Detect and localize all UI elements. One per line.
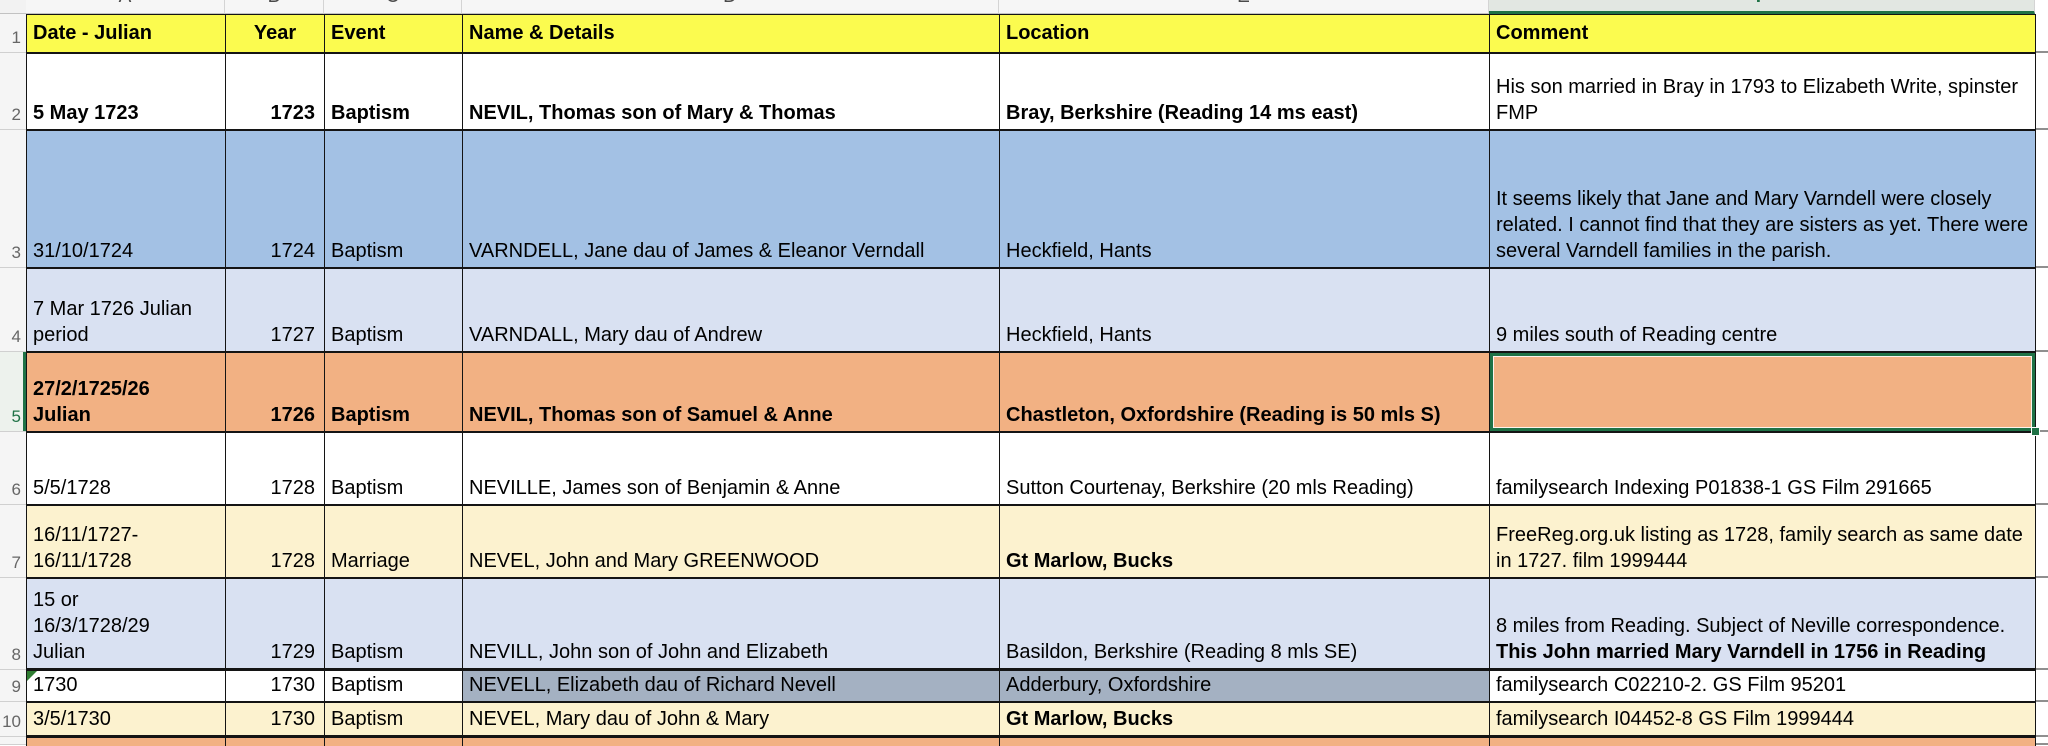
cell-text: Heckfield, Hants [1006,238,1152,264]
next-column-sliver [2036,14,2048,745]
empty-cell[interactable] [2036,53,2048,130]
column-header-d[interactable]: D [462,0,999,14]
cell-location[interactable]: Adderbury, Oxfordshire [1000,671,1490,701]
cell-date[interactable]: 16/11/1727- 16/11/1728 [27,506,226,577]
row-header-2[interactable]: 2 [0,53,26,130]
cell-location[interactable]: Heckfield, Hants [1000,269,1490,351]
cell-text: 3/5/1730 [33,706,111,732]
cell-text: 1726 [271,402,316,428]
cell-location[interactable]: Heckfield, Hants [1000,131,1490,267]
cell-text: 16/11/1727- 16/11/1728 [33,522,138,574]
cell-text: 1728 [271,475,316,501]
column-header-a[interactable]: A [26,0,225,14]
table-row: 3/5/1730 1730 Baptism NEVEL, Mary dau of… [27,703,2036,738]
cell-year[interactable]: 1730 [226,671,325,701]
sheet-grid: Date - Julian Year Event Name & Details … [26,14,2036,746]
cell-text: VARNDALL, Mary dau of Andrew [469,322,762,348]
cell-location[interactable]: Sutton Courtenay, Berkshire (20 mls Read… [1000,433,1490,504]
empty-cell[interactable] [2036,432,2048,505]
cell-text: Baptism [331,639,403,665]
cell-text: 5 May 1723 [33,100,139,126]
row-header-8[interactable]: 8 [0,578,26,670]
cell-text: Sutton Courtenay, Berkshire (20 mls Read… [1006,475,1414,501]
cell-location[interactable]: Basildon, Berkshire (Reading 8 mls SE) [1000,579,1490,668]
header-date-julian[interactable]: Date - Julian [27,15,226,52]
cell-year[interactable]: 1723 [226,54,325,129]
cell-text: 1730 [271,672,316,698]
empty-cell[interactable] [2036,578,2048,670]
cell-text: 1730 [271,706,316,732]
row-number: 6 [12,480,21,500]
table-row: 1730 1730 Baptism NEVELL, Elizabeth dau … [27,671,2036,703]
gutter-corner[interactable] [0,0,26,14]
cell-text: 15 or 16/3/1728/29 Julian [33,587,150,665]
cell-date[interactable]: 5/5/1728 [27,433,226,504]
cell-date[interactable]: 31/10/1724 [27,131,226,267]
cell-event[interactable]: Baptism [325,131,463,267]
cell-text-bold: This John married Mary Varndell in 1756 … [1496,641,1986,663]
header-year[interactable]: Year [226,15,325,52]
table-row: 5/5/1728 1728 Baptism NEVILLE, James son… [27,433,2036,506]
row-header-6[interactable]: 6 [0,432,26,505]
cell-comment[interactable]: familysearch C02210-2. GS Film 95201 [1490,671,2036,701]
cell-name[interactable]: NEVIL, Thomas son of Mary & Thomas [463,54,1000,129]
cell-text: Baptism [331,475,403,501]
cell-event[interactable]: Baptism [325,54,463,129]
cell-name[interactable]: NEVILLE, James son of Benjamin & Anne [463,433,1000,504]
cell-text: 1729 [271,639,316,665]
header-row: Date - Julian Year Event Name & Details … [27,15,2036,54]
cell-date[interactable]: 27/2/1725/26 Julian [27,353,226,431]
cell-text: familysearch I04452-8 GS Film 1999444 [1496,708,1854,730]
cell-location[interactable]: Chastleton, Oxfordshire (Reading is 50 m… [1000,353,1490,431]
row-number: 8 [12,645,21,665]
empty-cell[interactable] [2036,505,2048,578]
header-comment[interactable]: Comment [1490,15,2036,52]
cell-name[interactable]: VARNDALL, Mary dau of Andrew [463,269,1000,351]
cell-event[interactable]: Baptism [325,353,463,431]
header-label: Name & Details [469,20,615,46]
row-header-11[interactable] [0,737,26,745]
column-letter: A [26,0,224,6]
column-letter: C [324,0,461,6]
cell-text: 1724 [271,238,316,264]
column-header-c[interactable]: C [324,0,462,14]
cell-name[interactable]: NEVIL, Thomas son of Samuel & Anne [463,353,1000,431]
header-location[interactable]: Location [1000,15,1490,52]
cell-text: NEVIL, Thomas son of Samuel & Anne [469,402,833,428]
cell-text: Baptism [331,100,410,126]
cell-text: Baptism [331,706,403,732]
row-header-4[interactable]: 4 [0,268,26,352]
cell-comment[interactable]: 9 miles south of Reading centre [1490,269,2036,351]
cell-text: NEVIL, Thomas son of Mary & Thomas [469,100,836,126]
header-event[interactable]: Event [325,15,463,52]
cell-text: NEVILLE, James son of Benjamin & Anne [469,475,840,501]
cell-text: It seems likely that Jane and Mary Varnd… [1496,188,2028,262]
cell-event[interactable]: Baptism [325,703,463,735]
row-number: 4 [12,327,21,347]
column-header-f-selected[interactable]: F [1489,0,2035,14]
cell-text: 1730 [33,672,78,698]
cell-text: 9 miles south of Reading centre [1496,324,1777,346]
cell-text: Chastleton, Oxfordshire (Reading is 50 m… [1006,402,1441,428]
column-header-e[interactable]: E [999,0,1489,14]
cell-text: NEVEL, Mary dau of John & Mary [469,706,769,732]
cell-text: 31/10/1724 [33,238,133,264]
cell-text: 5/5/1728 [33,475,111,501]
cell-year[interactable]: 1724 [226,131,325,267]
empty-cell[interactable] [2036,14,2048,53]
table-row-selected: 27/2/1725/26 Julian 1726 Baptism NEVIL, … [27,353,2036,433]
row-header-5-selected[interactable]: 5 [0,352,26,432]
cell-date[interactable]: 3/5/1730 [27,703,226,735]
cell-text: Baptism [331,322,403,348]
header-label: Comment [1496,22,1588,44]
cell-text: Baptism [331,238,403,264]
cell-text: 1728 [271,548,316,574]
empty-cell[interactable] [2036,702,2048,737]
cell-name[interactable]: NEVEL, Mary dau of John & Mary [463,703,1000,735]
cell-text: VARNDELL, Jane dau of James & Eleanor Ve… [469,238,924,264]
table-row: 15 or 16/3/1728/29 Julian 1729 Baptism N… [27,579,2036,671]
cell-text: 1723 [271,100,316,126]
cell-name[interactable]: NEVILL, John son of John and Elizabeth [463,579,1000,668]
cell-text: Basildon, Berkshire (Reading 8 mls SE) [1006,639,1357,665]
cell-date[interactable]: 5 May 1723 [27,54,226,129]
cell-text: 7 Mar 1726 Julian period [33,296,192,348]
cell-year[interactable]: 1728 [226,433,325,504]
cell-text: NEVEL, John and Mary GREENWOOD [469,548,819,574]
row-number: 9 [12,677,21,697]
empty-cell[interactable] [2036,737,2048,745]
row-number: 3 [12,243,21,263]
row-number: 7 [12,553,21,573]
cell-location[interactable]: Bray, Berkshire (Reading 14 ms east) [1000,54,1490,129]
row-header-gutter: 1 2 3 4 5 6 7 8 9 10 [0,14,26,745]
cell-text: FreeReg.org.uk listing as 1728, family s… [1496,524,2023,572]
cell-event[interactable]: Baptism [325,433,463,504]
column-letter: E [999,0,1488,6]
column-header-b[interactable]: B [225,0,324,14]
cell-text: Baptism [331,672,403,698]
header-label: Year [254,20,296,46]
cell-date[interactable]: 7 Mar 1726 Julian period [27,269,226,351]
cell-year[interactable]: 1727 [226,269,325,351]
error-indicator-icon [27,671,37,681]
cell-comment[interactable]: 8 miles from Reading. Subject of Neville… [1490,579,2036,668]
cell-text: 1727 [271,322,316,348]
cell-text: familysearch Indexing P01838-1 GS Film 2… [1496,477,1932,499]
column-letter: F [1489,0,2034,6]
header-label: Date - Julian [33,20,152,46]
cell-year[interactable]: 1726 [226,353,325,431]
cell-text: 8 miles from Reading. Subject of Neville… [1496,615,2005,637]
cell-event[interactable]: Baptism [325,579,463,668]
cell-text: Bray, Berkshire (Reading 14 ms east) [1006,100,1358,126]
column-header-strip: A B C D E F [26,0,2035,14]
cell-text: Marriage [331,548,410,574]
cell-comment[interactable]: familysearch Indexing P01838-1 GS Film 2… [1490,433,2036,504]
cell-text: NEVILL, John son of John and Elizabeth [469,639,828,665]
cell-year[interactable]: 1728 [226,506,325,577]
table-row: 31/10/1724 1724 Baptism VARNDELL, Jane d… [27,131,2036,269]
cell-event[interactable]: Baptism [325,671,463,701]
cell-text: Heckfield, Hants [1006,322,1152,348]
cell-text: Baptism [331,402,410,428]
header-label: Event [331,20,385,46]
cell-name[interactable]: VARNDELL, Jane dau of James & Eleanor Ve… [463,131,1000,267]
cell-date[interactable]: 1730 [27,671,226,701]
row-number: 2 [12,105,21,125]
header-name-details[interactable]: Name & Details [463,15,1000,52]
cell-text: NEVELL, Elizabeth dau of Richard Nevell [469,672,836,698]
cell-year[interactable]: 1729 [226,579,325,668]
cell-text: Gt Marlow, Bucks [1006,706,1173,732]
cell-date[interactable]: 15 or 16/3/1728/29 Julian [27,579,226,668]
cell-text: Adderbury, Oxfordshire [1006,672,1211,698]
empty-cell[interactable] [2036,352,2048,432]
column-letter: D [462,0,998,6]
row-number: 10 [2,712,21,732]
row-number: 5 [12,407,21,427]
cell-event[interactable]: Baptism [325,269,463,351]
cell-comment[interactable]: It seems likely that Jane and Mary Varnd… [1490,131,2036,267]
cell-text: 27/2/1725/26 Julian [33,376,150,428]
header-label: Location [1006,20,1089,46]
cell-comment[interactable]: FreeReg.org.uk listing as 1728, family s… [1490,506,2036,577]
empty-cell[interactable] [2036,670,2048,702]
row-header-3[interactable]: 3 [0,130,26,268]
fill-handle[interactable] [2031,427,2040,436]
row-number: 1 [12,28,21,48]
table-row: 16/11/1727- 16/11/1728 1728 Marriage NEV… [27,506,2036,579]
cell-year[interactable]: 1730 [226,703,325,735]
table-row: 5 May 1723 1723 Baptism NEVIL, Thomas so… [27,54,2036,131]
cell-location[interactable]: Gt Marlow, Bucks [1000,506,1490,577]
cell-comment[interactable]: His son married in Bray in 1793 to Eliza… [1490,54,2036,129]
row-header-9[interactable]: 9 [0,670,26,702]
cell-text: His son married in Bray in 1793 to Eliza… [1496,76,2018,124]
column-letter: B [225,0,323,6]
cell-comment[interactable]: familysearch I04452-8 GS Film 1999444 [1490,703,2036,735]
table-row: 7 Mar 1726 Julian period 1727 Baptism VA… [27,269,2036,353]
spreadsheet-screen: A B C D E F 1 2 3 4 5 6 7 8 9 10 Date - … [0,0,2048,745]
row-header-7[interactable]: 7 [0,505,26,578]
cell-name[interactable]: NEVEL, John and Mary GREENWOOD [463,506,1000,577]
empty-cell[interactable] [2036,130,2048,268]
empty-cell[interactable] [2036,268,2048,352]
cell-event[interactable]: Marriage [325,506,463,577]
cell-text: Gt Marlow, Bucks [1006,548,1173,574]
row-header-10[interactable]: 10 [0,702,26,737]
cell-text: familysearch C02210-2. GS Film 95201 [1496,674,1846,696]
cell-name[interactable]: NEVELL, Elizabeth dau of Richard Nevell [463,671,1000,701]
cell-location[interactable]: Gt Marlow, Bucks [1000,703,1490,735]
selected-cell-comment[interactable] [1490,353,2036,431]
row-header-1[interactable]: 1 [0,14,26,53]
